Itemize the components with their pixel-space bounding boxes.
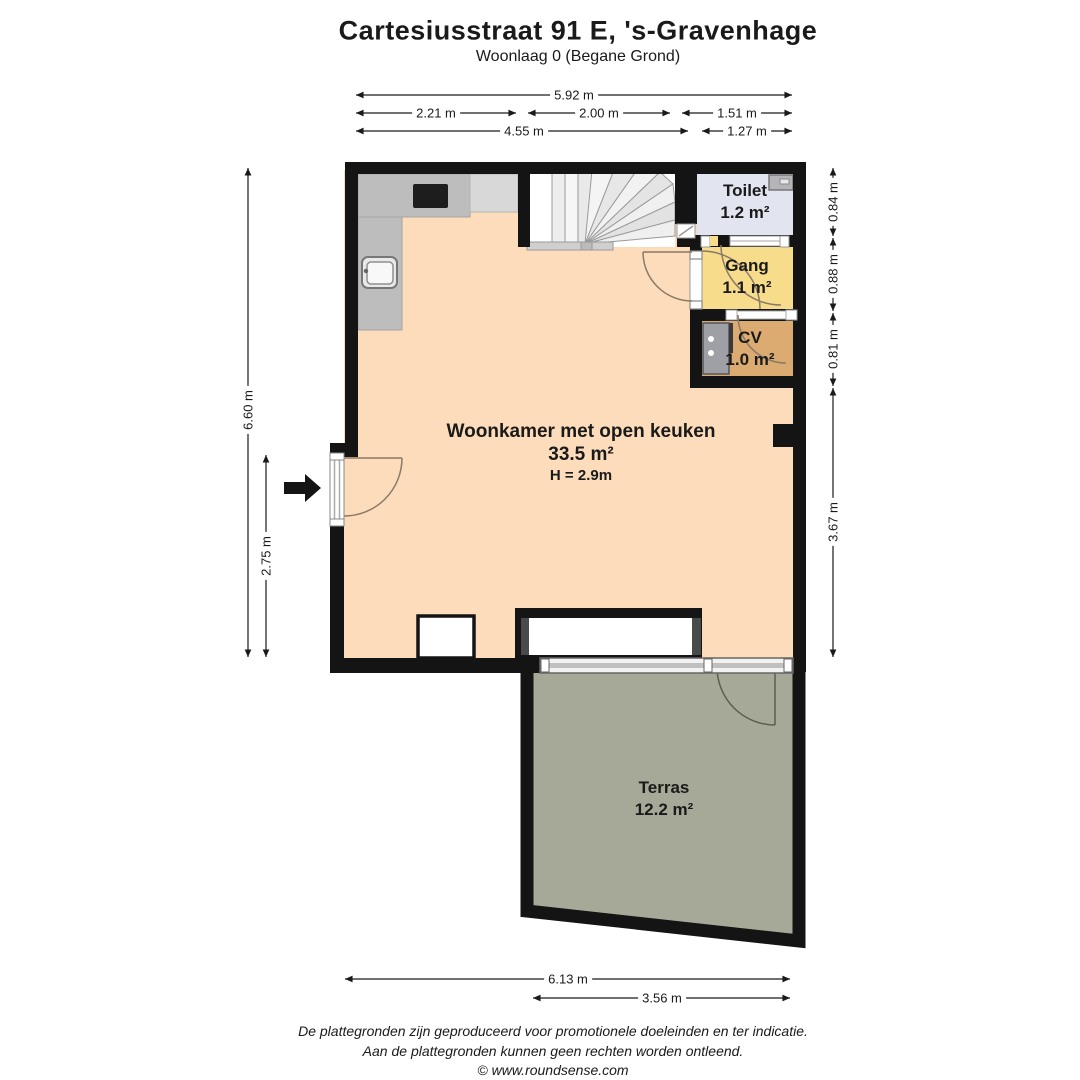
cooktop-icon xyxy=(413,184,448,208)
dimension-label-top-sub-right: 1.27 m xyxy=(723,124,771,139)
terras-label: Terras 12.2 m² xyxy=(635,777,694,821)
sink-icon xyxy=(362,257,397,288)
dimension-label-bottom-total: 6.13 m xyxy=(544,972,592,987)
terras-name: Terras xyxy=(635,777,694,799)
window-structure xyxy=(515,608,702,658)
cv-name: CV xyxy=(725,327,774,349)
footer-disclaimer-2: Aan de plattegronden kunnen geen rechten… xyxy=(363,1043,744,1059)
cv-area: 1.0 m² xyxy=(725,349,774,371)
dimension-label-left-total: 6.60 m xyxy=(241,386,256,434)
stair-landing xyxy=(527,242,613,250)
dimension-label-top-mid: 2.00 m xyxy=(575,106,623,121)
staircase xyxy=(527,168,675,250)
sliding-door xyxy=(540,658,793,673)
toilet-name: Toilet xyxy=(720,180,769,202)
toilet-cistern-icon xyxy=(769,175,793,190)
dimension-label-right-mid: 0.88 m xyxy=(826,250,841,298)
woonkamer-label: Woonkamer met open keuken 33.5 m² H = 2.… xyxy=(447,420,716,486)
terras-area: 12.2 m² xyxy=(635,799,694,821)
dimension-label-top-sub-left: 4.55 m xyxy=(500,124,548,139)
dimension-label-left-lower: 2.75 m xyxy=(259,532,274,580)
gang-label: Gang 1.1 m² xyxy=(722,255,771,299)
floorplan-page: { "title": "Cartesiusstraat 91 E, 's-Gra… xyxy=(0,0,1080,1080)
woonkamer-name: Woonkamer met open keuken xyxy=(447,420,716,443)
dimension-label-top-left: 2.21 m xyxy=(412,106,460,121)
toilet-area: 1.2 m² xyxy=(720,202,769,224)
dimension-label-right-low: 0.81 m xyxy=(826,325,841,373)
dimension-label-right-main: 3.67 m xyxy=(826,498,841,546)
cv-label: CV 1.0 m² xyxy=(725,327,774,371)
dimension-label-top-total: 5.92 m xyxy=(550,88,598,103)
entry-door xyxy=(330,453,344,526)
woonkamer-area: 33.5 m² xyxy=(447,443,716,466)
dimension-label-top-right: 1.51 m xyxy=(713,106,761,121)
gang-name: Gang xyxy=(722,255,771,277)
dimension-label-bottom-terras: 3.56 m xyxy=(638,991,686,1006)
toilet-label: Toilet 1.2 m² xyxy=(720,180,769,224)
footer-disclaimer-1: De plattegronden zijn geproduceerd voor … xyxy=(298,1023,808,1039)
furniture-box xyxy=(418,616,474,658)
footer-copyright: © www.roundsense.com xyxy=(477,1062,628,1078)
floor-plan-drawing xyxy=(0,0,1080,1080)
gang-area: 1.1 m² xyxy=(722,277,771,299)
dimension-label-right-top: 0.84 m xyxy=(826,178,841,226)
entrance-arrow-icon xyxy=(284,474,321,502)
woonkamer-height: H = 2.9m xyxy=(447,466,716,486)
